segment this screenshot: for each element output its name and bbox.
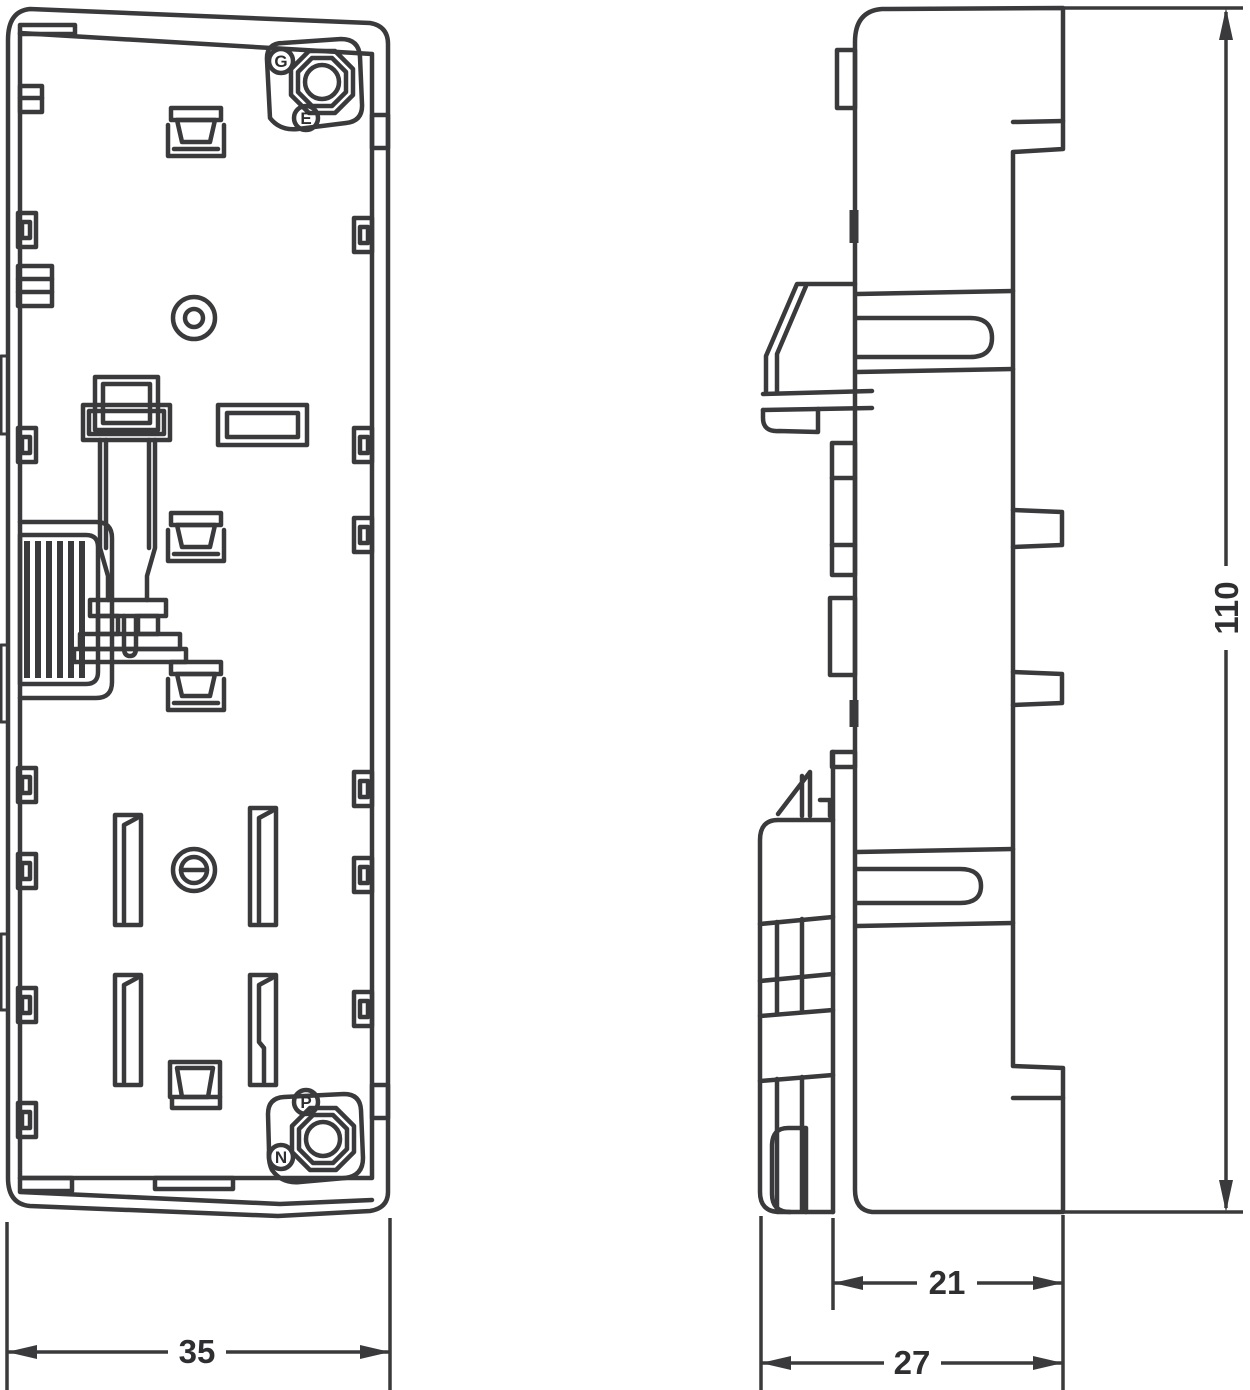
vertical-slot-2 — [250, 808, 276, 925]
dimension-front-width: 35 — [7, 1218, 390, 1390]
edge-clip — [354, 858, 372, 892]
front-outline-outer — [8, 9, 388, 1216]
arrowhead-top — [1219, 8, 1233, 40]
bottom-terminal-nut: P N — [268, 1090, 363, 1182]
edge-clip — [354, 428, 372, 462]
arrowhead-bottom — [1219, 1180, 1233, 1212]
edge-clip — [354, 518, 372, 552]
latch-foot — [74, 600, 186, 662]
snap-clip-mid-2 — [168, 662, 224, 710]
terminal-label-g: G — [274, 52, 287, 71]
dim-label-110: 110 — [1208, 581, 1245, 634]
terminal-label-e: E — [300, 109, 311, 128]
side-step-ledge — [1013, 121, 1063, 122]
upper-rail-hook — [857, 291, 1013, 372]
edge-tab — [372, 115, 388, 148]
nut-octagon-outer — [291, 51, 353, 113]
dim-label-27: 27 — [894, 1344, 931, 1381]
lower-rail-hook — [857, 849, 1013, 926]
latch-stem — [100, 440, 155, 600]
dim-label-35: 35 — [179, 1333, 216, 1370]
latch-grip — [20, 522, 112, 698]
side-left-tab — [837, 50, 855, 108]
pilot-hole — [173, 297, 215, 339]
horizontal-slot — [218, 405, 307, 445]
vertical-slot-1 — [115, 815, 141, 925]
arrowhead-right — [1033, 1356, 1063, 1370]
edge-clip — [354, 772, 372, 806]
edge-tab — [20, 86, 42, 112]
snap-clip-bottom — [170, 1062, 220, 1108]
side-right-tab — [1013, 672, 1062, 705]
front-top-step — [20, 25, 75, 34]
lower-release-lever — [760, 752, 855, 1212]
snap-clip-mid-1 — [168, 513, 224, 561]
edge-vent — [18, 266, 52, 306]
technical-drawing: G E P N — [0, 0, 1250, 1390]
technical-drawing-canvas: G E P N — [0, 0, 1250, 1390]
side-view — [760, 8, 1063, 1212]
edge-fin — [1, 645, 8, 722]
side-terminal-openings — [830, 443, 855, 675]
edge-clip — [354, 218, 372, 252]
dimension-side-height: 110 — [1063, 8, 1245, 1212]
terminal-label-p: P — [300, 1093, 311, 1112]
terminal-label-n: N — [275, 1148, 287, 1167]
din-latch-mechanism — [20, 377, 186, 698]
arrowhead-left — [7, 1345, 37, 1359]
dim-label-21: 21 — [929, 1264, 966, 1301]
edge-fin — [1, 356, 8, 434]
edge-clip — [354, 992, 372, 1026]
nut-bore — [306, 1122, 340, 1156]
dimension-side-overall-depth: 27 — [761, 1216, 1063, 1390]
side-outline — [855, 8, 1063, 1212]
snap-clip-top — [168, 108, 224, 156]
slotted-screw — [173, 849, 215, 891]
arrowhead-right — [1033, 1276, 1063, 1290]
side-right-tab — [1013, 510, 1062, 547]
vertical-slot-4 — [250, 975, 276, 1085]
vertical-slot-3 — [115, 975, 141, 1085]
nut-bore — [305, 65, 339, 99]
arrowhead-left — [761, 1356, 791, 1370]
edge-fin — [1, 934, 8, 1010]
nut-octagon-outer — [292, 1108, 354, 1170]
front-view: G E P N — [1, 9, 388, 1216]
edge-tab — [372, 1085, 388, 1118]
arrowhead-right — [360, 1345, 390, 1359]
arrowhead-left — [833, 1276, 863, 1290]
